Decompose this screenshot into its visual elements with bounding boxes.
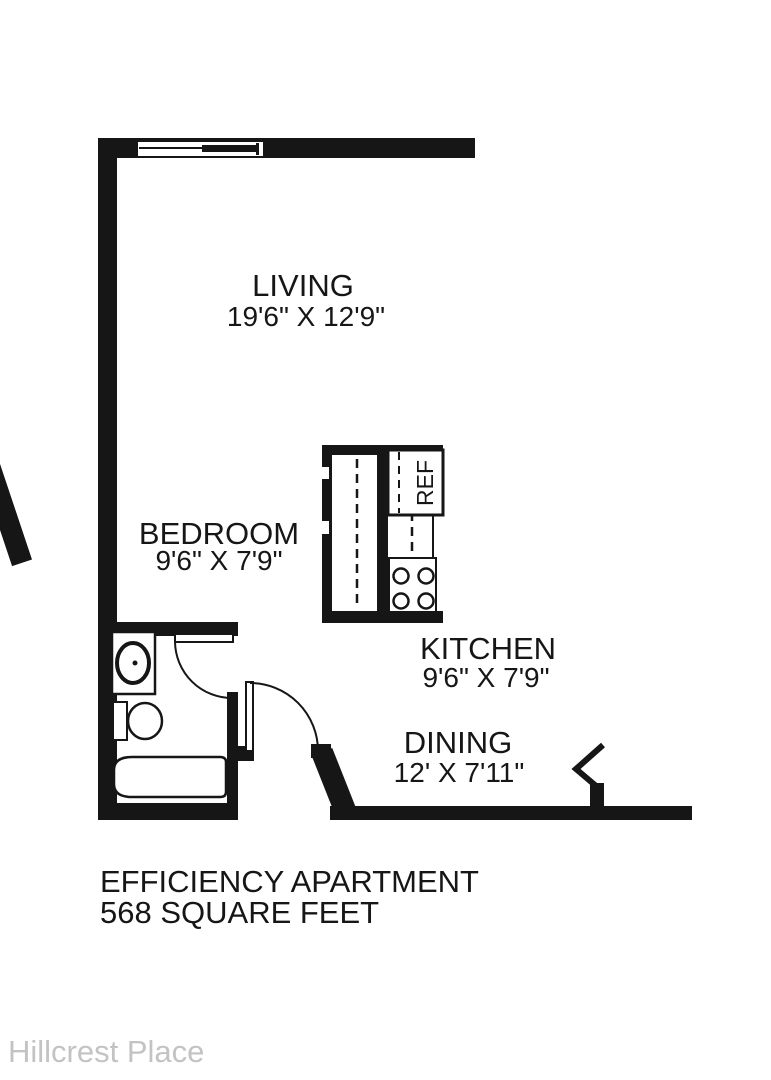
kitchen-label: KITCHEN (420, 631, 556, 666)
caption-line1: EFFICIENCY APARTMENT (100, 864, 479, 899)
diagonal-wall-assembly: DW (0, 0, 32, 587)
bathroom-door-panel (175, 634, 233, 642)
floor-plan-drawing: DW REF (0, 0, 771, 1080)
caption-line2: 568 SQUARE FEET (100, 895, 379, 930)
kitchen-dims: 9'6" X 7'9" (422, 662, 549, 693)
bathroom-door-arc (175, 642, 232, 698)
wall-bath-bottom (98, 803, 238, 820)
closet-notch-2 (322, 521, 329, 534)
bedroom-dims: 9'6" X 7'9" (155, 545, 282, 576)
center-unit: REF (322, 445, 443, 623)
wall-connector-cap (311, 744, 331, 758)
living-dims: 19'6" X 12'9" (227, 301, 385, 332)
toilet-bowl (128, 703, 162, 739)
bedroom-door-arc (250, 683, 318, 751)
floor-plan-page: DW REF (0, 0, 771, 1080)
wall-diagonal (0, 0, 32, 566)
burner-3 (394, 594, 409, 609)
toilet-tank (113, 702, 127, 740)
dining-dims: 12' X 7'11" (394, 757, 525, 788)
wall-bottom (330, 806, 692, 820)
caption: EFFICIENCY APARTMENT 568 SQUARE FEET (100, 864, 479, 930)
dining-label: DINING (404, 725, 513, 760)
living-label: LIVING (252, 268, 354, 303)
burner-4 (419, 594, 434, 609)
bath-sink-drain (133, 661, 138, 666)
burner-1 (394, 569, 409, 584)
bathroom (112, 632, 233, 797)
wall-bath-right (227, 692, 238, 816)
refrigerator-label: REF (412, 460, 438, 506)
wall-connector-diagonal (322, 752, 345, 810)
entry-door (576, 745, 604, 809)
bathtub (114, 757, 226, 797)
entry-door-stub (590, 783, 604, 809)
closet-notch-1 (322, 467, 329, 479)
window (137, 141, 264, 157)
bedroom-door (246, 682, 318, 751)
bedroom-door-panel (246, 682, 253, 751)
room-labels: LIVING 19'6" X 12'9" BEDROOM 9'6" X 7'9"… (139, 268, 556, 788)
watermark: Hillcrest Place (8, 1034, 204, 1069)
burner-2 (419, 569, 434, 584)
unit-wall-middle (377, 447, 388, 615)
